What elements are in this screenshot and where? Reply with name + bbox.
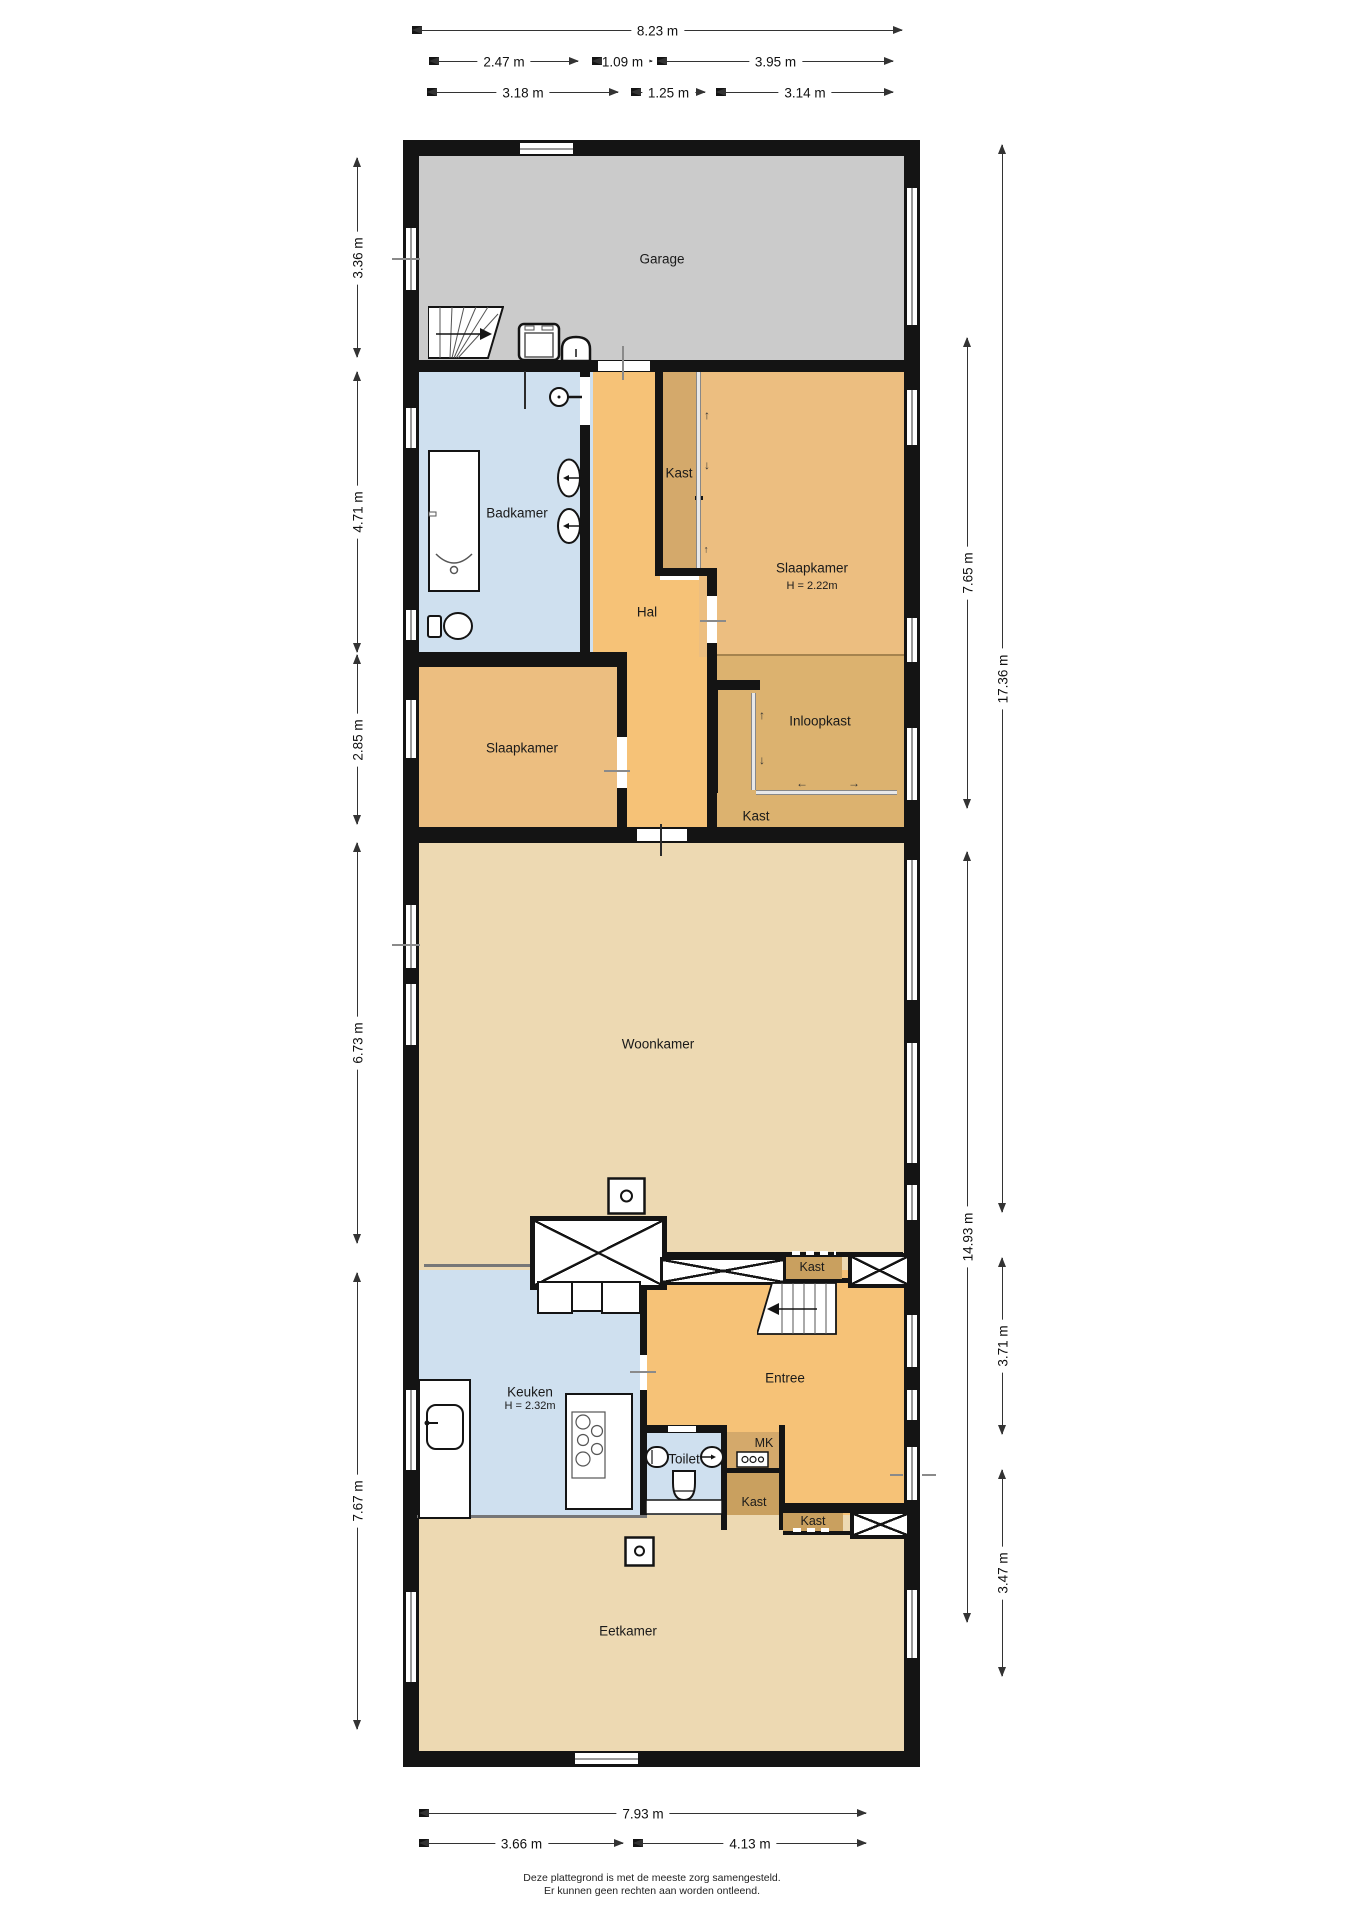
disclaimer-line-1: Deze plattegrond is met de meeste zorg s… xyxy=(523,1872,780,1884)
stairs-garage xyxy=(428,306,504,359)
dim-left-b: 4.71 m xyxy=(357,372,358,652)
label-inloopkast: Inloopkast xyxy=(789,714,851,729)
divider-woonkamer-keuken xyxy=(424,1264,530,1267)
window-entree-right-2 xyxy=(907,1390,917,1420)
slide-arrow-down-icon: ↓ xyxy=(704,458,710,472)
tick-entry-door-in xyxy=(890,1474,903,1476)
slide-arrow-left-icon: ← xyxy=(796,776,808,790)
dim-top-e: 1.25 m xyxy=(632,92,705,93)
kast-box-row-dashes xyxy=(792,1251,836,1255)
label-kast-row: Kast xyxy=(799,1260,824,1274)
dim-right-inner-b: 14.93 m xyxy=(967,852,968,1622)
toilet-badkamer xyxy=(427,610,475,642)
dim-left-c: 2.85 m xyxy=(357,655,358,824)
stairs-entree xyxy=(757,1283,837,1335)
label-kast-right: Kast xyxy=(800,1514,825,1528)
label-hal: Hal xyxy=(637,605,657,620)
dim-right-outer-a: 17.36 m xyxy=(1002,145,1003,1212)
window-woonkamer-right-1 xyxy=(907,860,917,1000)
door-toilet xyxy=(668,1426,696,1432)
window-badkamer-left-1 xyxy=(406,408,416,448)
label-kast-strip: Kast xyxy=(665,466,692,481)
door-hal-woonkamer xyxy=(637,829,687,841)
dim-left-d: 6.73 m xyxy=(357,843,358,1243)
keuken-cabinets xyxy=(537,1281,641,1314)
label-entree: Entree xyxy=(765,1371,805,1386)
door-hal-slaapkamer-left xyxy=(617,737,627,788)
cabinet-entree-row xyxy=(660,1257,786,1285)
dim-top-b: 1.09 m xyxy=(593,61,652,62)
dim-top-total: 8.23 m xyxy=(413,30,902,31)
tick-slaapkamer-right-door xyxy=(700,620,726,622)
label-keuken: Keuken xyxy=(507,1385,553,1400)
dim-bottom-total: 7.93 m xyxy=(420,1813,866,1814)
sink-badkamer-2 xyxy=(556,508,584,545)
disclaimer-line-2: Er kunnen geen rechten aan worden ontlee… xyxy=(544,1885,760,1897)
toilet-bowl xyxy=(670,1469,698,1502)
dim-right-outer-b: 3.71 m xyxy=(1002,1258,1003,1434)
room-woonkamer xyxy=(417,838,907,1273)
label-keuken-height: H = 2.32m xyxy=(504,1400,555,1412)
wall-inloopkast-top xyxy=(708,680,760,690)
keuken-counter-sink xyxy=(418,1379,471,1519)
rail-inloopkast-horizontal xyxy=(756,790,897,795)
label-toilet: Toilet xyxy=(668,1452,700,1467)
tick-woonkamer-window xyxy=(392,944,420,946)
window-badkamer-left-2 xyxy=(406,610,416,640)
stove-eetkamer xyxy=(624,1536,655,1567)
bathtub xyxy=(428,450,480,592)
window-entree-right-1 xyxy=(907,1315,917,1367)
tick-entry-door-out xyxy=(922,1474,936,1476)
sink-toilet-right xyxy=(699,1446,723,1468)
slide-arrow-right-icon: → xyxy=(848,776,860,790)
dim-left-a: 3.36 m xyxy=(357,158,358,357)
tick-garage-window xyxy=(392,258,420,260)
dim-right-outer-c: 3.47 m xyxy=(1002,1470,1003,1676)
room-slaapkamer-right xyxy=(699,365,907,657)
wall-outer-top xyxy=(403,140,920,156)
window-garage-top xyxy=(520,143,573,154)
label-badkamer: Badkamer xyxy=(486,506,548,521)
window-garage-right xyxy=(907,188,917,325)
wall-keuken-entree xyxy=(640,1273,647,1518)
window-jamb-woonkamer-left xyxy=(406,968,416,984)
divider-slaapkamer-inloopkast xyxy=(712,654,907,656)
meter-unit xyxy=(736,1451,769,1468)
window-keuken-left xyxy=(406,1390,416,1470)
dim-top-c: 3.95 m xyxy=(658,61,893,62)
fireplace-block xyxy=(530,1216,667,1290)
window-inloopkast-right-1 xyxy=(907,618,917,662)
leaf-badkamer-door xyxy=(524,371,526,409)
tick-garage-hal-door xyxy=(622,346,624,380)
slide-arrow-up2-icon: ↑ xyxy=(704,545,709,556)
boiler xyxy=(560,335,592,362)
floorplan-page: ↑ ↓ ↑ ↑ ↓ ← → xyxy=(0,0,1358,1920)
slide-arrow-up3-icon: ↑ xyxy=(759,708,765,722)
slide-arrow-down2-icon: ↓ xyxy=(759,753,765,767)
label-eetkamer: Eetkamer xyxy=(599,1624,657,1639)
window-slaapkamer-left xyxy=(406,700,416,758)
wall-hal-kast xyxy=(655,372,663,575)
leaf-hal-woonkamer-door xyxy=(660,824,662,856)
stove-woonkamer xyxy=(607,1177,646,1215)
window-eetkamer-bottom xyxy=(575,1753,638,1764)
rail-inloopkast-vertical xyxy=(751,693,756,790)
keuken-island-hob xyxy=(565,1393,633,1510)
dim-right-inner-a: 7.65 m xyxy=(967,338,968,808)
rail-kast-strip xyxy=(696,372,701,568)
wall-outer-bottom xyxy=(403,1751,920,1767)
cabinet-entree-row-2 xyxy=(848,1253,911,1288)
kast-box-right-dashes xyxy=(793,1528,835,1532)
window-woonkamer-right-3 xyxy=(907,1185,917,1220)
washing-machine xyxy=(517,322,561,362)
label-garage: Garage xyxy=(639,252,684,267)
tick-slaapkamer-left-door xyxy=(604,770,630,772)
label-mk: MK xyxy=(755,1436,774,1450)
label-kast-center: Kast xyxy=(741,1495,766,1509)
dim-top-d: 3.18 m xyxy=(428,92,618,93)
window-slaapkamer-right xyxy=(907,390,917,445)
wall-inloopkast-left xyxy=(708,690,718,793)
dim-bottom-a: 3.66 m xyxy=(420,1843,623,1844)
window-woonkamer-right-2 xyxy=(907,1043,917,1163)
wall-mk-bottom xyxy=(727,1468,779,1473)
toilet-shelf xyxy=(645,1499,723,1515)
dim-top-a: 2.47 m xyxy=(430,61,578,62)
door-garage-hal xyxy=(598,361,650,371)
slide-arrow-up-icon: ↑ xyxy=(704,408,710,422)
label-woonkamer: Woonkamer xyxy=(622,1037,695,1052)
wall-garage-bottom xyxy=(403,360,920,372)
shower-head xyxy=(548,386,584,408)
window-inloopkast-right-2 xyxy=(907,728,917,800)
sink-badkamer-1 xyxy=(556,458,584,498)
dim-top-f: 3.14 m xyxy=(717,92,893,93)
dim-left-e: 7.67 m xyxy=(357,1273,358,1729)
sink-toilet-left xyxy=(645,1446,669,1468)
entry-door-glass xyxy=(907,1447,917,1500)
dim-bottom-b: 4.13 m xyxy=(634,1843,866,1844)
label-kast-inloop: Kast xyxy=(742,809,769,824)
label-slaapkamer-right: Slaapkamer xyxy=(776,561,848,576)
tick-keuken-entree-door xyxy=(630,1371,656,1373)
wall-badkamer-bottom xyxy=(403,652,627,667)
label-slaapkamer-right-height: H = 2.22m xyxy=(786,580,837,592)
room-eetkamer xyxy=(417,1515,907,1755)
window-eetkamer-right xyxy=(907,1590,917,1658)
label-slaapkamer-left: Slaapkamer xyxy=(486,741,558,756)
window-eetkamer-left xyxy=(406,1592,416,1682)
cabinet-right-lower xyxy=(850,1510,911,1539)
